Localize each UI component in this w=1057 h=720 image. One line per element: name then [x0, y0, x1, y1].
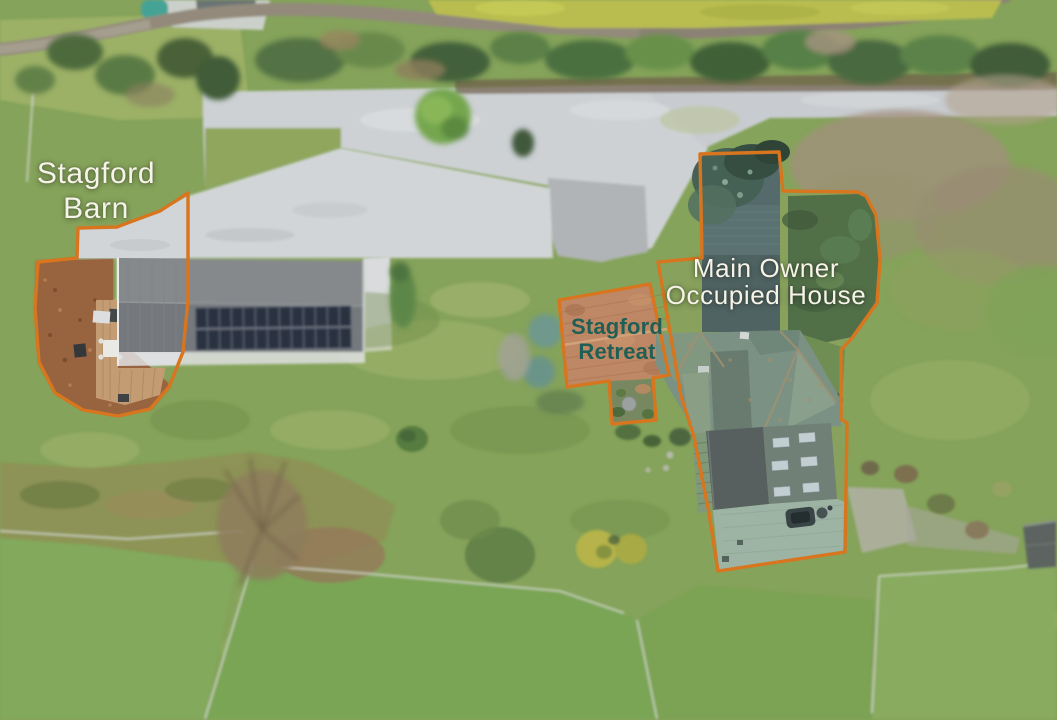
- retreat-courtyard: [610, 379, 657, 424]
- house-label: Main Owner Occupied House: [666, 255, 867, 309]
- retreat-label-line1: Stagford: [571, 314, 663, 339]
- rear-wing-roof: [706, 427, 769, 510]
- barn-label: Stagford Barn: [37, 156, 155, 226]
- barn-label-line2: Barn: [37, 191, 155, 226]
- courtyard-tree: [415, 88, 471, 144]
- house-label-line1: Main Owner: [666, 255, 867, 282]
- shed: [1023, 521, 1056, 569]
- retreat-label-line2: Retreat: [571, 339, 663, 364]
- retreat-label: Stagford Retreat: [571, 314, 663, 364]
- aerial-property-photo: Stagford Barn Stagford Retreat Main Owne…: [0, 0, 1057, 720]
- deck-table: [817, 508, 828, 519]
- tarmac-parking: [548, 178, 648, 262]
- yellow-bushes: [576, 530, 647, 568]
- field-bottom-right: [873, 561, 1056, 719]
- aerial-photo-canvas: [0, 0, 1057, 720]
- barn-label-line1: Stagford: [37, 156, 155, 191]
- skylight-roof: [763, 423, 837, 504]
- house-label-line2: Occupied House: [666, 282, 867, 309]
